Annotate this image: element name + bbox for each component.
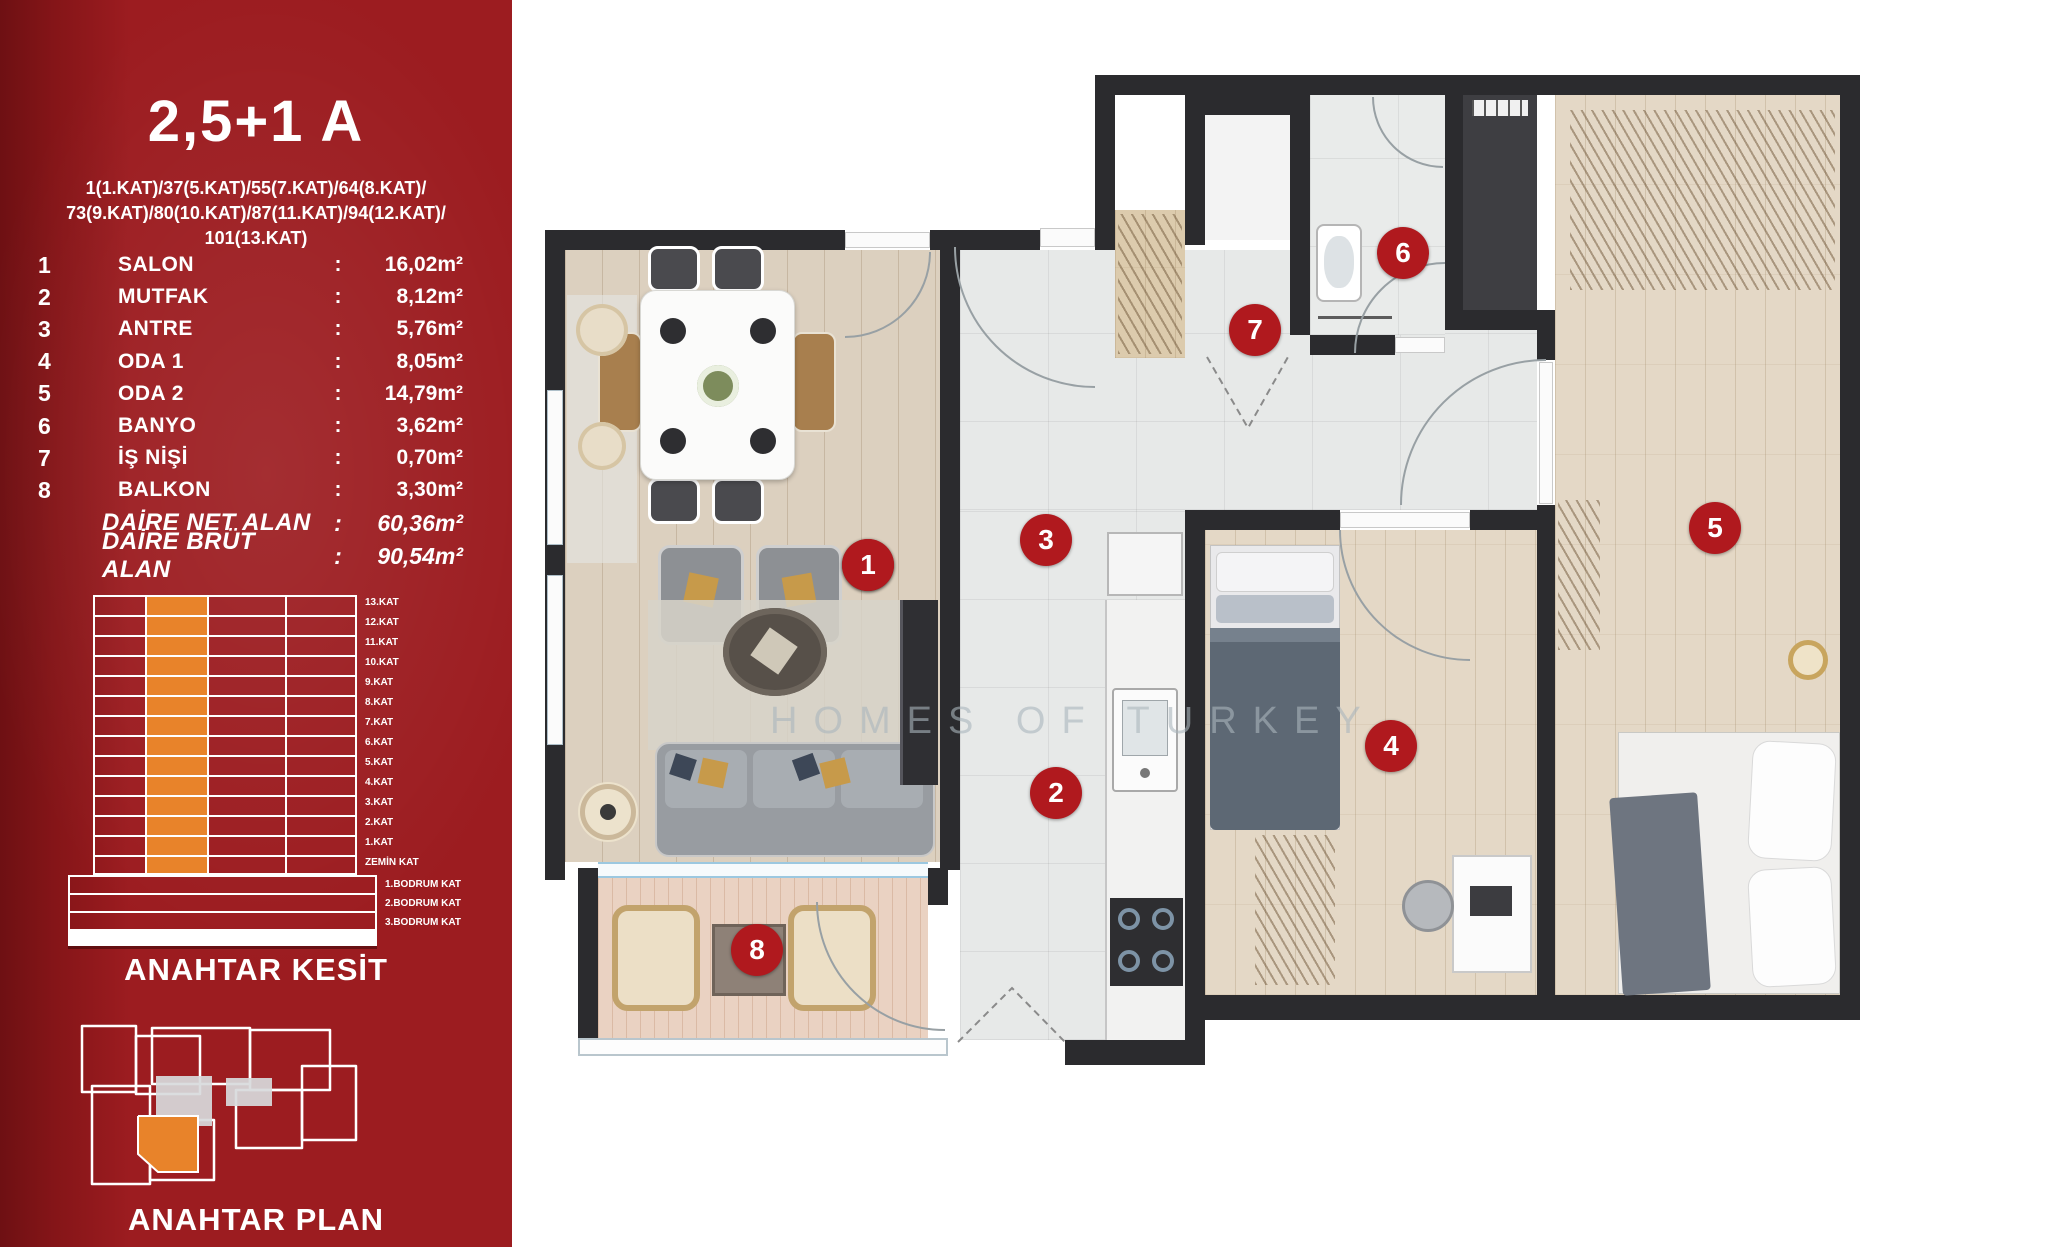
room-row: 3ANTRE:5,76m²	[38, 313, 463, 345]
desk-chair	[1402, 880, 1454, 932]
wall	[1205, 510, 1340, 530]
wall	[578, 868, 598, 1040]
plate-icon	[750, 428, 776, 454]
wall	[545, 230, 565, 880]
laptop-icon	[1470, 886, 1512, 916]
wall	[1445, 310, 1537, 330]
section-tower-grid	[93, 595, 357, 875]
door-opening	[1040, 228, 1095, 247]
floor-label: 8.KAT	[365, 696, 445, 710]
room-row: 6BANYO:3,62m²	[38, 410, 463, 442]
pillow-icon	[1747, 866, 1837, 988]
floor-label: 6.KAT	[365, 736, 445, 750]
pillow-icon	[1216, 552, 1334, 592]
dining-chair	[712, 478, 764, 524]
burner-icon	[1152, 908, 1174, 930]
room-row: 5ODA 2:14,79m²	[38, 378, 463, 410]
dining-chair	[792, 332, 836, 432]
door-opening	[1395, 337, 1445, 353]
niche-floor	[1205, 115, 1290, 240]
room-row: 1SALON:16,02m²	[38, 249, 463, 281]
floor-label: 2.KAT	[365, 816, 445, 830]
sink-basin-icon	[1324, 236, 1354, 288]
key-plan-map	[60, 1010, 390, 1200]
floor-label: 11.KAT	[365, 636, 445, 650]
room-badge-banyo: 6	[1377, 227, 1429, 279]
plate-icon	[660, 318, 686, 344]
floor-numbers-line: 1(1.KAT)/37(5.KAT)/55(7.KAT)/64(8.KAT)/	[0, 176, 512, 201]
wall	[1185, 95, 1205, 245]
dining-chair	[648, 246, 700, 292]
lamp-center-icon	[600, 804, 616, 820]
wall	[1185, 510, 1205, 1065]
shaft	[1463, 95, 1537, 310]
section-ground-bar	[68, 933, 377, 946]
room-row: 8BALKON:3,30m²	[38, 474, 463, 506]
pillow-icon	[1216, 595, 1334, 623]
sliding-door-icon	[598, 862, 928, 878]
floor-label: 10.KAT	[365, 656, 445, 670]
fridge	[1107, 532, 1183, 596]
wall	[1470, 510, 1537, 530]
floor-label: 4.KAT	[365, 776, 445, 790]
vent-grille-icon	[1472, 100, 1528, 116]
room-badge-antre: 3	[1020, 514, 1072, 566]
floor-numbers-line: 73(9.KAT)/80(10.KAT)/87(11.KAT)/94(12.KA…	[0, 201, 512, 226]
room-badge-balkon: 8	[731, 924, 783, 976]
floor-label: 7.KAT	[365, 716, 445, 730]
section-heading: ANAHTAR KESİT	[0, 952, 512, 988]
floor-label: 13.KAT	[365, 596, 445, 610]
highlighted-unit	[138, 1116, 198, 1172]
floor-numbers-line: 101(13.KAT)	[0, 226, 512, 251]
basement-label: 3.BODRUM KAT	[385, 916, 485, 930]
duvet-fold	[1210, 628, 1340, 642]
basement-label: 2.BODRUM KAT	[385, 897, 485, 911]
room-row: 4ODA 1:8,05m²	[38, 346, 463, 378]
door-opening	[1340, 512, 1470, 528]
floor-label: 5.KAT	[365, 756, 445, 770]
wall	[1205, 95, 1290, 115]
wall	[1095, 75, 1115, 250]
room-row: 2MUTFAK:8,12m²	[38, 281, 463, 313]
wall	[1840, 75, 1860, 1020]
wall	[1310, 335, 1395, 355]
floor-label: 12.KAT	[365, 616, 445, 630]
gross-area-row: DAİRE BRÜT ALAN:90,54m²	[38, 540, 463, 573]
dining-chair	[648, 478, 700, 524]
wardrobe-icon	[1570, 110, 1835, 290]
patio-chair	[612, 905, 700, 1011]
room-badge-salon: 1	[842, 539, 894, 591]
room-row: 7İŞ NİŞİ:0,70m²	[38, 442, 463, 474]
room-badge-mutfak: 2	[1030, 767, 1082, 819]
door-opening	[1539, 362, 1553, 504]
cushion-icon	[698, 758, 729, 789]
burner-icon	[1152, 950, 1174, 972]
wall	[930, 230, 960, 250]
room-table: 1SALON:16,02m² 2MUTFAK:8,12m² 3ANTRE:5,7…	[38, 249, 463, 573]
basement-label: 1.BODRUM KAT	[385, 878, 485, 892]
patio-chair	[788, 905, 876, 1011]
plate-icon	[750, 318, 776, 344]
room-badge-isnisi: 7	[1229, 304, 1281, 356]
faucet-icon	[1140, 768, 1150, 778]
wall	[1065, 1040, 1205, 1065]
plan-title: 2,5+1 A	[0, 88, 512, 155]
wall	[1290, 95, 1310, 335]
plate-icon	[660, 428, 686, 454]
sidebar: 2,5+1 A 1(1.KAT)/37(5.KAT)/55(7.KAT)/64(…	[0, 0, 512, 1247]
wall	[1095, 75, 1860, 95]
burner-icon	[1118, 950, 1140, 972]
wall	[1445, 95, 1463, 330]
key-plan-heading: ANAHTAR PLAN	[0, 1202, 512, 1238]
pillow-icon	[1747, 740, 1837, 862]
window-icon	[547, 575, 563, 745]
room-badge-oda2: 5	[1689, 502, 1741, 554]
floor-lamp-icon	[578, 422, 626, 470]
window-icon	[547, 390, 563, 545]
wardrobe-icon	[1255, 835, 1335, 985]
door-opening	[845, 232, 930, 248]
dining-chair	[712, 246, 764, 292]
wall	[1537, 505, 1555, 995]
room-badge-oda1: 4	[1365, 720, 1417, 772]
floor-label: ZEMİN KAT	[365, 856, 445, 870]
wall	[960, 230, 1040, 250]
wall	[1185, 995, 1860, 1020]
mirror-icon	[1788, 640, 1828, 680]
towel-bar-icon	[1318, 316, 1392, 319]
floor-label: 9.KAT	[365, 676, 445, 690]
tv-unit	[900, 600, 938, 785]
centerpiece-icon	[697, 365, 739, 407]
floor-numbers: 1(1.KAT)/37(5.KAT)/55(7.KAT)/64(8.KAT)/ …	[0, 176, 512, 251]
wardrobe-icon	[1118, 214, 1182, 354]
floor-label: 3.KAT	[365, 796, 445, 810]
section-podium-grid	[68, 875, 377, 933]
blanket	[1609, 792, 1711, 996]
watermark: HOMES OF TURKEY	[770, 700, 1390, 743]
balcony-railing	[578, 1038, 948, 1056]
wall	[928, 868, 948, 905]
burner-icon	[1118, 908, 1140, 930]
wall	[1537, 310, 1555, 360]
wardrobe-icon	[1558, 500, 1600, 650]
floor-lamp-icon	[576, 304, 628, 356]
wall	[940, 250, 960, 870]
brochure-page: 2,5+1 A 1(1.KAT)/37(5.KAT)/55(7.KAT)/64(…	[0, 0, 2048, 1247]
floor-label: 1.KAT	[365, 836, 445, 850]
